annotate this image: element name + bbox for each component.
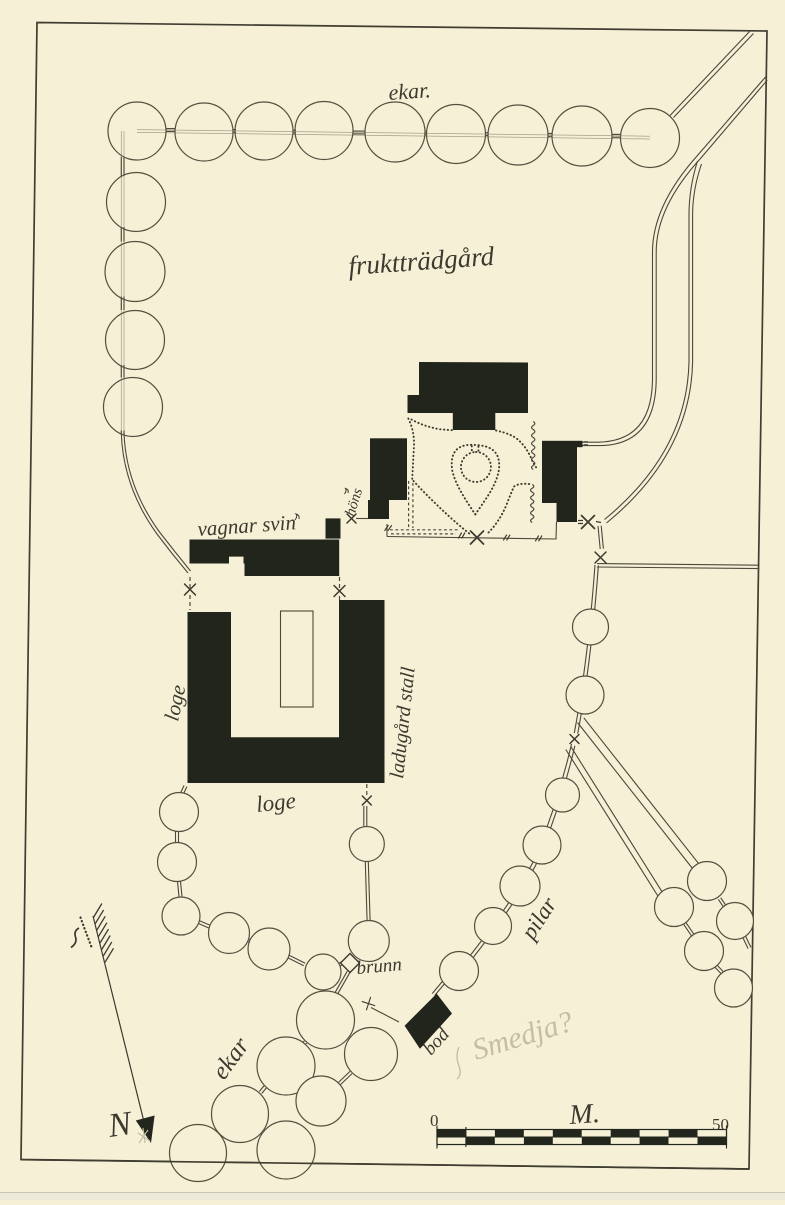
svg-text:M.: M. [567, 1098, 600, 1131]
svg-text:50: 50 [712, 1115, 729, 1134]
svg-text:ekar.: ekar. [388, 77, 432, 105]
svg-text:0: 0 [430, 1111, 439, 1130]
svg-text:brunn: brunn [356, 954, 403, 979]
svg-text:loge: loge [255, 788, 297, 817]
